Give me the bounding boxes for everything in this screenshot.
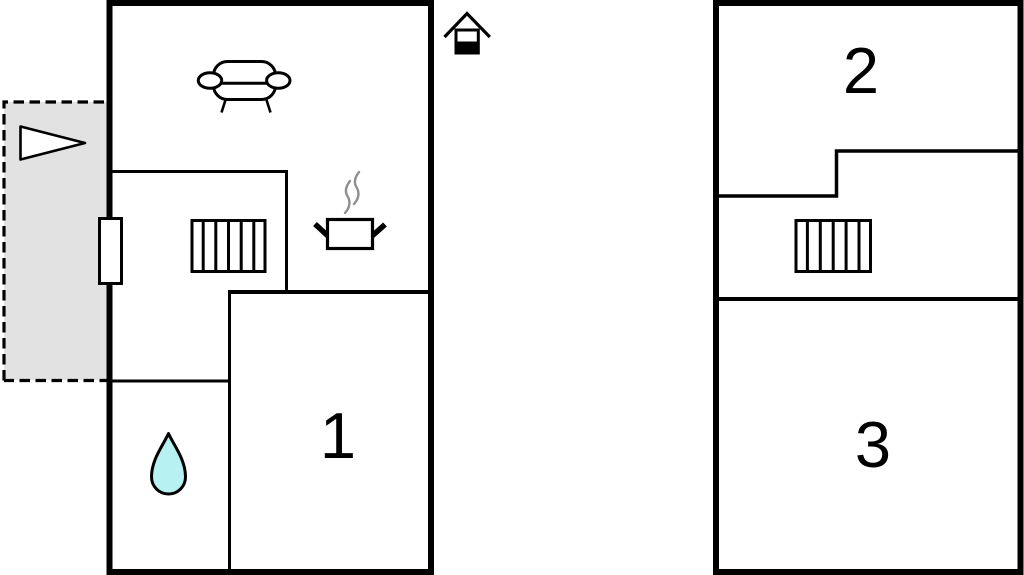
svg-text:1: 1 <box>320 399 356 472</box>
svg-text:3: 3 <box>855 408 891 481</box>
svg-text:2: 2 <box>843 34 879 107</box>
